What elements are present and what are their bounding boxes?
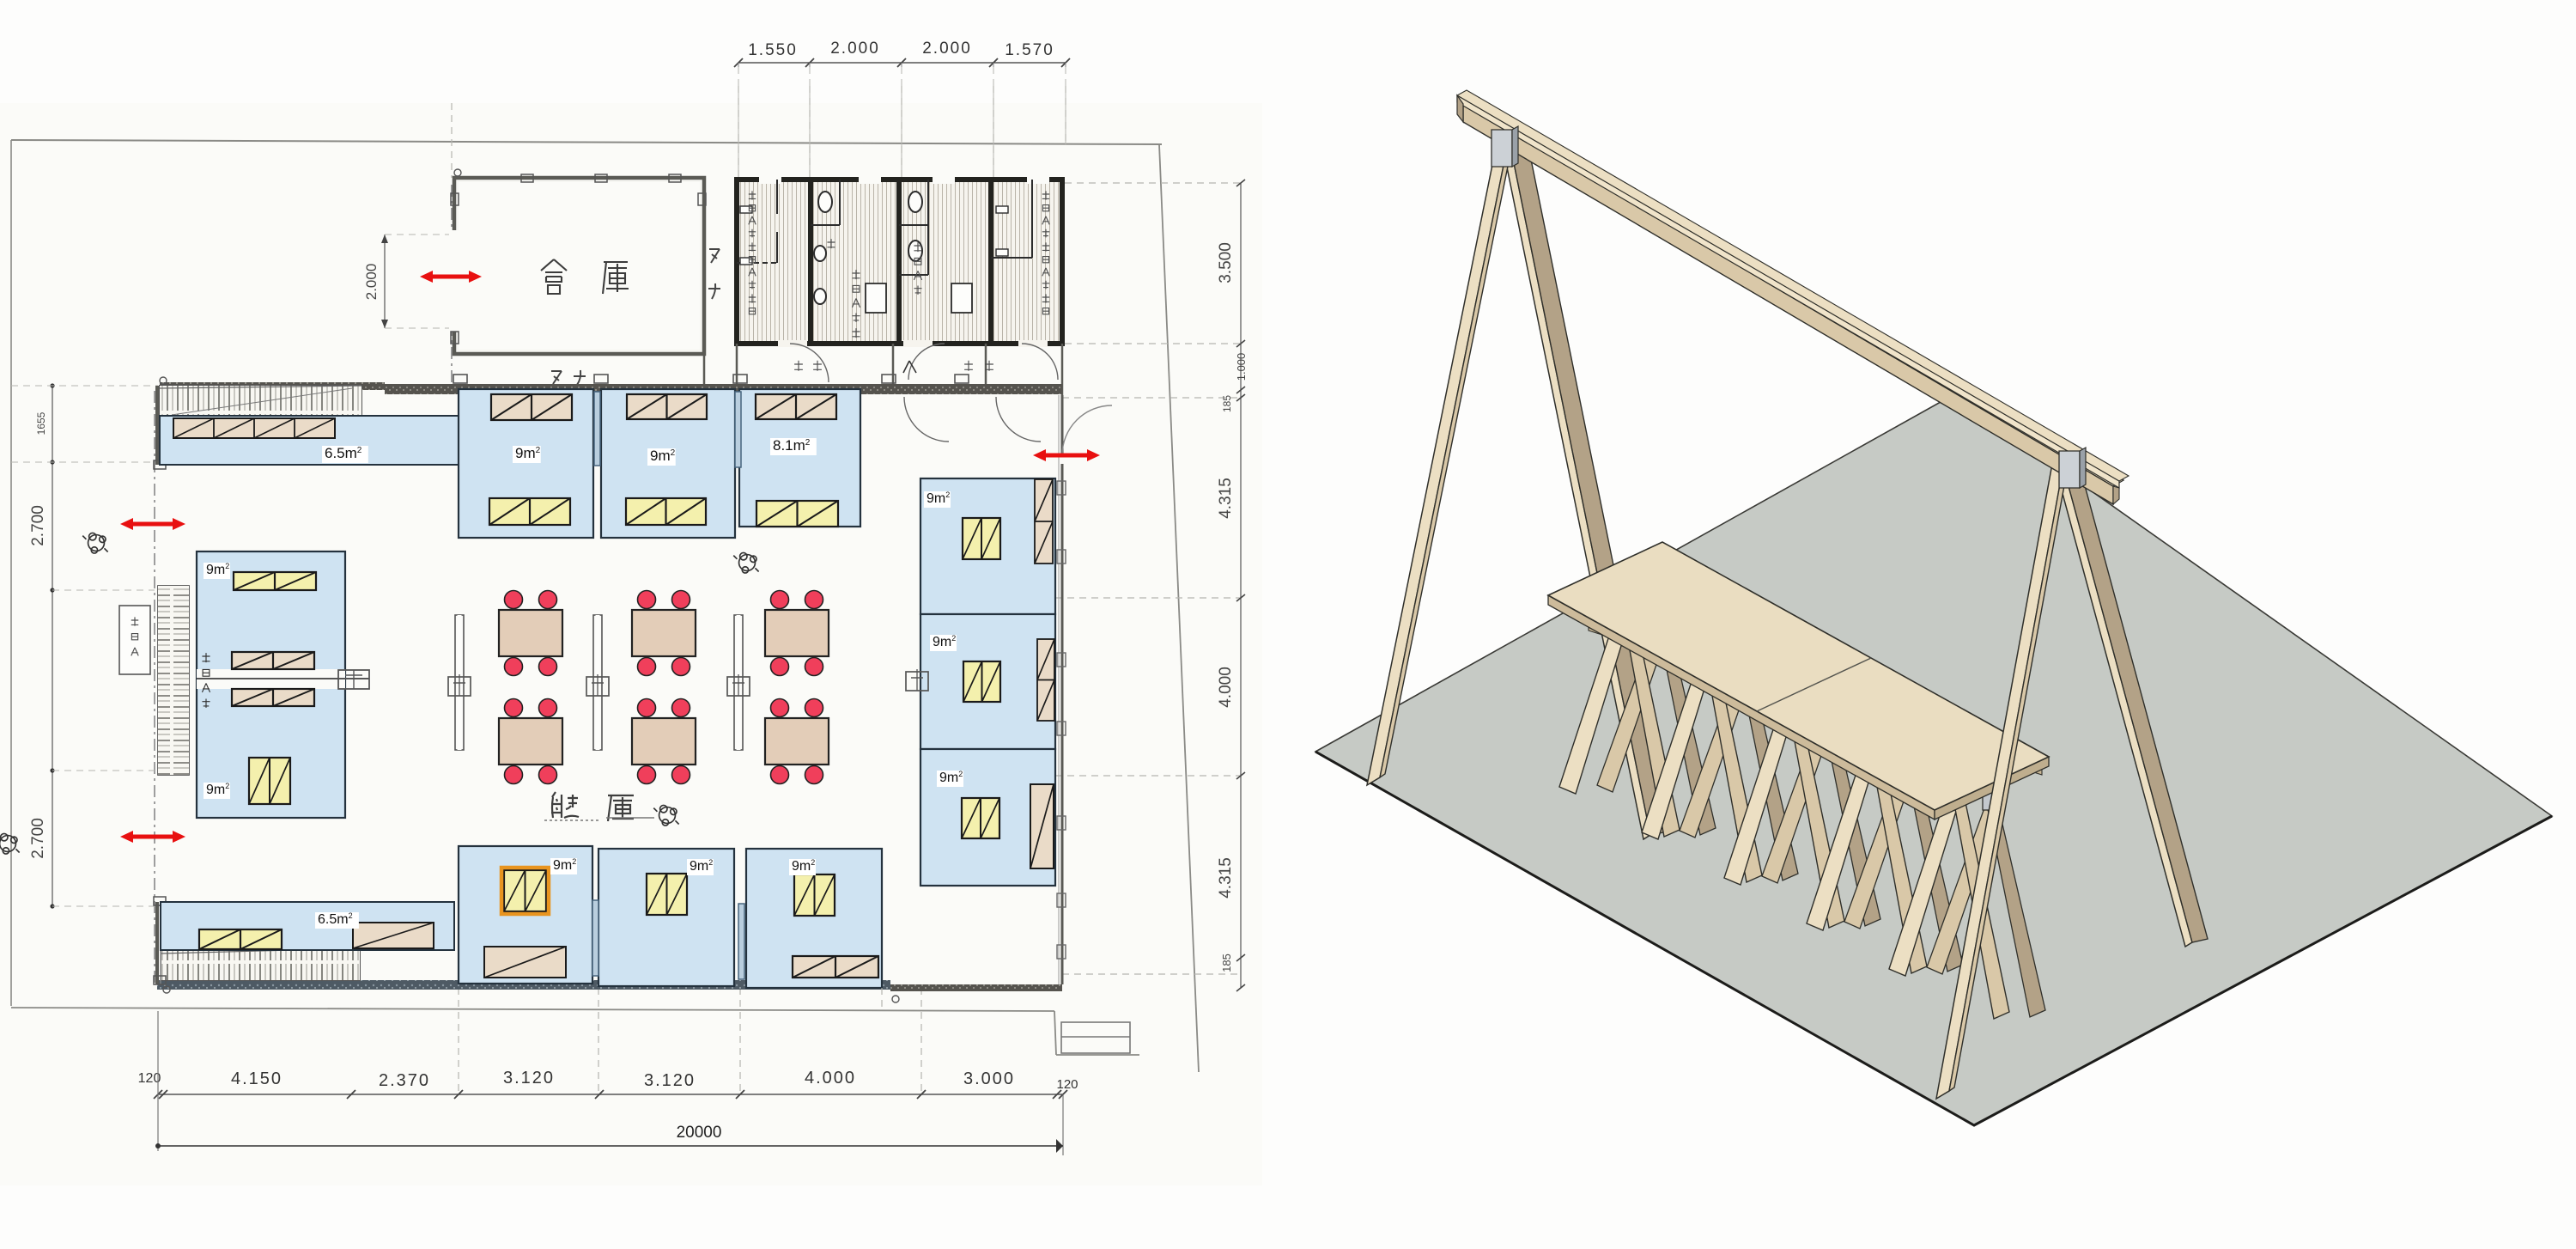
svg-text:1.570: 1.570	[1005, 41, 1054, 59]
svg-text:1.000: 1.000	[1235, 353, 1248, 381]
svg-text:3.000: 3.000	[963, 1069, 1015, 1088]
svg-text:2.000: 2.000	[922, 40, 972, 58]
svg-text:3.120: 3.120	[644, 1071, 696, 1090]
svg-text:4.315: 4.315	[1217, 857, 1235, 899]
svg-text:3.120: 3.120	[503, 1069, 555, 1088]
svg-text:2.700: 2.700	[29, 505, 47, 546]
svg-text:4.150: 4.150	[231, 1069, 283, 1088]
svg-text:3.500: 3.500	[1217, 242, 1235, 283]
svg-text:4.315: 4.315	[1217, 478, 1235, 519]
svg-text:6.5m2: 6.5m2	[325, 445, 362, 461]
svg-text:2.370: 2.370	[379, 1071, 430, 1090]
svg-text:1.550: 1.550	[748, 41, 798, 59]
svg-text:8.1m2: 8.1m2	[773, 437, 811, 454]
svg-text:4.000: 4.000	[1217, 667, 1235, 708]
svg-text:20000: 20000	[677, 1124, 722, 1142]
svg-text:185: 185	[1221, 395, 1233, 412]
svg-text:120: 120	[1056, 1077, 1078, 1092]
svg-text:4.000: 4.000	[805, 1069, 856, 1088]
svg-text:2.000: 2.000	[830, 40, 880, 58]
svg-text:2.700: 2.700	[29, 818, 47, 859]
svg-text:6.5m2: 6.5m2	[318, 911, 353, 927]
svg-text:185: 185	[1220, 954, 1233, 972]
svg-text:1655: 1655	[35, 411, 47, 435]
svg-text:2.000: 2.000	[363, 264, 380, 301]
